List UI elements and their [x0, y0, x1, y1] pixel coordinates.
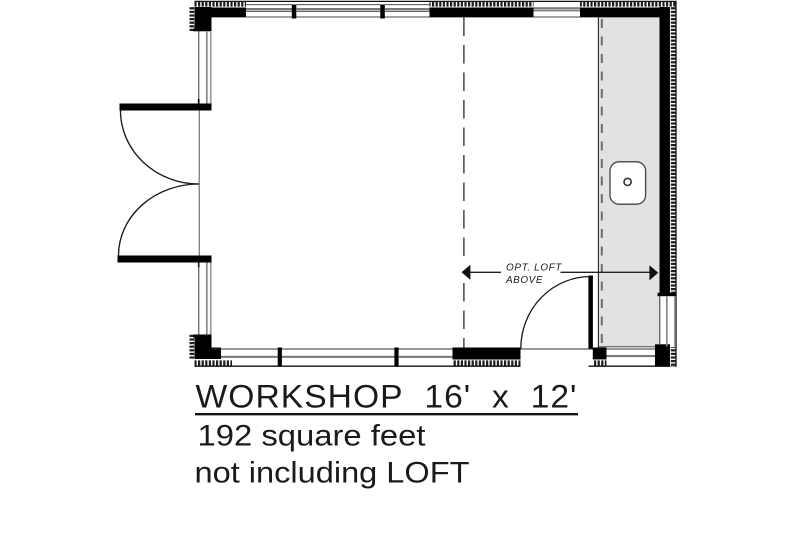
svg-text:not including LOFT: not including LOFT: [195, 456, 470, 489]
svg-text:ABOVE: ABOVE: [505, 275, 543, 286]
svg-text:OPT. LOFT: OPT. LOFT: [506, 263, 562, 274]
svg-text:WORKSHOP 16' x 12': WORKSHOP 16' x 12': [196, 379, 578, 415]
svg-text:192 square feet: 192 square feet: [198, 420, 427, 453]
